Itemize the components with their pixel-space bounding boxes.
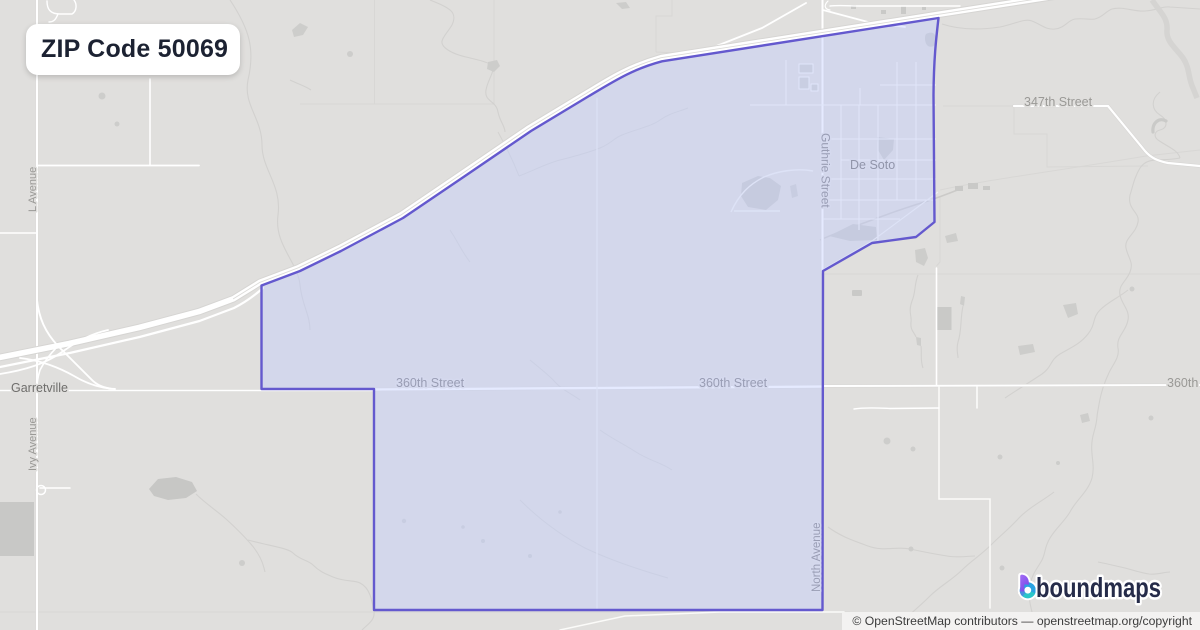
svg-text:North Avenue: North Avenue (811, 523, 823, 592)
svg-text:347th Street: 347th Street (1024, 95, 1093, 109)
svg-text:360th Street: 360th Street (699, 376, 768, 390)
svg-text:De Soto: De Soto (850, 158, 895, 172)
svg-text:Ivy Avenue: Ivy Avenue (27, 417, 39, 471)
svg-text:Guthrie Street: Guthrie Street (819, 133, 833, 208)
svg-text:360th: 360th (1167, 376, 1198, 390)
svg-text:Garretville: Garretville (11, 381, 68, 395)
svg-text:boundmaps: boundmaps (1036, 572, 1161, 603)
svg-text:L Avenue: L Avenue (27, 167, 39, 212)
svg-text:360th Street: 360th Street (396, 376, 465, 390)
